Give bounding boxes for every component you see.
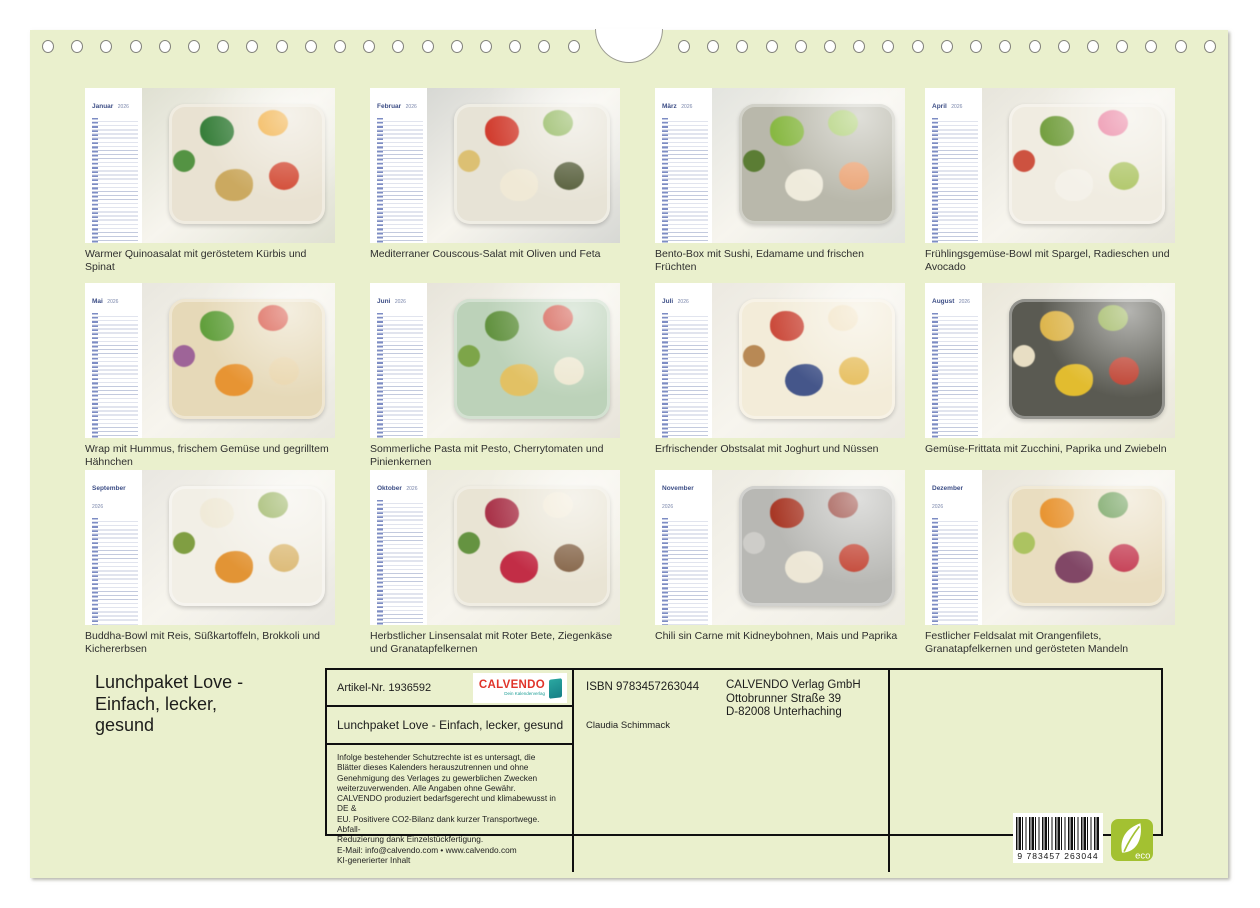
binding-hole — [1145, 40, 1157, 53]
binding-hole — [970, 40, 982, 53]
calendar-page-thumbnail: Juni 2026 — [370, 283, 620, 438]
calendar-month-cell: Dezember 2026 Festlicher Feldsalat mit O… — [925, 470, 1175, 655]
mini-calendar-day-lines — [377, 313, 423, 438]
photo-highlight — [142, 470, 335, 625]
months-row-3: September 2026 Buddha-Bowl mit Reis, Süß… — [85, 470, 1175, 655]
food-photo — [427, 88, 620, 243]
info-table-middle-column: ISBN 9783457263044 CALVENDO Verlag GmbH … — [572, 670, 888, 872]
month-year: 2026 — [951, 104, 962, 110]
mini-calendar-column: März 2026 — [655, 88, 712, 243]
month-name: Dezember — [932, 485, 963, 492]
mini-calendar-month-label: Februar 2026 — [377, 95, 423, 113]
calendar-page-thumbnail: November 2026 — [655, 470, 905, 625]
month-caption: Gemüse-Frittata mit Zucchini, Paprika un… — [925, 443, 1175, 456]
month-year: 2026 — [678, 299, 689, 305]
calendar-month-cell: Juni 2026 Sommerliche Pasta mit Pesto, C… — [370, 283, 620, 468]
calendar-back-page: Januar 2026 Warmer Quinoasalat mit gerös… — [0, 0, 1260, 908]
mini-calendar-column: Oktober 2026 — [370, 470, 427, 625]
photo-highlight — [427, 283, 620, 438]
month-year: 2026 — [118, 104, 129, 110]
binding-hole — [159, 40, 171, 53]
mini-calendar-month-label: September 2026 — [92, 477, 138, 513]
photo-highlight — [982, 283, 1175, 438]
photo-highlight — [427, 88, 620, 243]
publisher-address: CALVENDO Verlag GmbH Ottobrunner Straße … — [726, 679, 861, 720]
month-caption: Festlicher Feldsalat mit Orangenfilets, … — [925, 630, 1175, 655]
month-year: 2026 — [395, 299, 406, 305]
month-caption: Frühlingsgemüse-Bowl mit Spargel, Radies… — [925, 248, 1175, 273]
mini-calendar-day-lines — [92, 518, 138, 625]
months-row-1: Januar 2026 Warmer Quinoasalat mit gerös… — [85, 88, 1175, 273]
product-title: Lunchpaket Love - Einfach, lecker, gesun… — [95, 672, 243, 737]
info-table-right-column: 9 783457 263044 eco — [888, 670, 1161, 872]
month-caption: Warmer Quinoasalat mit geröstetem Kürbis… — [85, 248, 335, 273]
binding-hole — [568, 40, 580, 53]
binding-hole — [766, 40, 778, 53]
mini-calendar-month-label: August 2026 — [932, 290, 978, 308]
mini-calendar-month-label: April 2026 — [932, 95, 978, 113]
binding-hole — [363, 40, 375, 53]
binding-hole — [912, 40, 924, 53]
mini-calendar-month-label: Januar 2026 — [92, 95, 138, 113]
binding-hole — [422, 40, 434, 53]
binding-hole — [707, 40, 719, 53]
binding-hole — [42, 40, 54, 53]
month-caption: Erfrischender Obstsalat mit Joghurt und … — [655, 443, 905, 456]
calendar-month-cell: November 2026 Chili sin Carne mit Kidney… — [655, 470, 905, 655]
binding-hole — [334, 40, 346, 53]
eco-logo-icon: eco — [1111, 818, 1153, 862]
mini-calendar-month-label: März 2026 — [662, 95, 708, 113]
mini-calendar-day-lines — [932, 313, 978, 438]
calendar-month-cell: Januar 2026 Warmer Quinoasalat mit gerös… — [85, 88, 335, 273]
food-photo — [982, 470, 1175, 625]
product-title-row: Lunchpaket Love - Einfach, lecker, gesun… — [327, 707, 572, 745]
food-photo — [427, 470, 620, 625]
mini-calendar-column: August 2026 — [925, 283, 982, 438]
mini-calendar-column: Juni 2026 — [370, 283, 427, 438]
month-name: Oktober — [377, 485, 402, 492]
calendar-page-thumbnail: August 2026 — [925, 283, 1175, 438]
calendar-page-thumbnail: April 2026 — [925, 88, 1175, 243]
mini-calendar-day-lines — [932, 118, 978, 243]
mini-calendar-column: Dezember 2026 — [925, 470, 982, 625]
artikel-number: Artikel-Nr. 1936592 — [337, 682, 431, 694]
mini-calendar-day-lines — [932, 518, 978, 625]
food-photo — [712, 88, 905, 243]
month-year: 2026 — [406, 486, 417, 492]
binding-hole — [1116, 40, 1128, 53]
mini-calendar-column: September 2026 — [85, 470, 142, 625]
mini-calendar-month-label: Juni 2026 — [377, 290, 423, 308]
barcode-digits: 9 783457 263044 — [1016, 851, 1100, 861]
mini-calendar-month-label: Mai 2026 — [92, 290, 138, 308]
mini-calendar-month-label: November 2026 — [662, 477, 708, 513]
calvendo-tagline: Dein Kalenderverlag — [479, 691, 545, 696]
binding-hole — [480, 40, 492, 53]
calendar-month-cell: März 2026 Bento-Box mit Sushi, Edamame u… — [655, 88, 905, 273]
binding-hole — [678, 40, 690, 53]
calendar-month-cell: August 2026 Gemüse-Frittata mit Zucchini… — [925, 283, 1175, 468]
month-name: März — [662, 103, 677, 110]
food-photo — [982, 88, 1175, 243]
binding-hole — [392, 40, 404, 53]
month-year: 2026 — [107, 299, 118, 305]
binding-hole — [824, 40, 836, 53]
binding-hole — [451, 40, 463, 53]
month-year: 2026 — [681, 104, 692, 110]
calendar-page-thumbnail: September 2026 — [85, 470, 335, 625]
month-caption: Chili sin Carne mit Kidneybohnen, Mais u… — [655, 630, 905, 643]
photo-highlight — [142, 88, 335, 243]
calendar-month-cell: Mai 2026 Wrap mit Hummus, frischem Gemüs… — [85, 283, 335, 468]
calvendo-logo: CALVENDO Dein Kalenderverlag — [473, 673, 567, 703]
month-year: 2026 — [932, 504, 943, 510]
barcode-bars — [1016, 817, 1100, 850]
isbn-number: ISBN 9783457263044 — [586, 681, 699, 693]
binding-hole — [795, 40, 807, 53]
binding-hole — [736, 40, 748, 53]
ean-barcode: 9 783457 263044 — [1013, 813, 1103, 863]
binding-hole — [999, 40, 1011, 53]
calendar-page-thumbnail: Mai 2026 — [85, 283, 335, 438]
hanger-notch — [595, 29, 663, 63]
legal-text: Infolge bestehender Schutzrechte ist es … — [327, 745, 572, 872]
binding-hole — [276, 40, 288, 53]
calendar-page-thumbnail: Juli 2026 — [655, 283, 905, 438]
mini-calendar-column: Mai 2026 — [85, 283, 142, 438]
binding-hole — [853, 40, 865, 53]
calendar-page-thumbnail: Dezember 2026 — [925, 470, 1175, 625]
mini-calendar-month-label: Dezember 2026 — [932, 477, 978, 513]
photo-highlight — [142, 283, 335, 438]
calvendo-logo-text: CALVENDO Dein Kalenderverlag — [479, 680, 545, 696]
month-name: April — [932, 103, 947, 110]
photo-highlight — [712, 470, 905, 625]
month-name: September — [92, 485, 126, 492]
mini-calendar-day-lines — [662, 518, 708, 625]
month-year: 2026 — [406, 104, 417, 110]
mini-calendar-column: Januar 2026 — [85, 88, 142, 243]
binding-hole — [305, 40, 317, 53]
mini-calendar-day-lines — [662, 118, 708, 243]
binding-hole — [188, 40, 200, 53]
calendar-month-cell: Oktober 2026 Herbstlicher Linsensalat mi… — [370, 470, 620, 655]
binding-hole — [882, 40, 894, 53]
binding-hole — [246, 40, 258, 53]
mini-calendar-month-label: Oktober 2026 — [377, 477, 423, 495]
month-caption: Herbstlicher Linsensalat mit Roter Bete,… — [370, 630, 620, 655]
mini-calendar-column: November 2026 — [655, 470, 712, 625]
months-row-2: Mai 2026 Wrap mit Hummus, frischem Gemüs… — [85, 283, 1175, 468]
month-name: August — [932, 298, 954, 305]
mini-calendar-day-lines — [92, 313, 138, 438]
binding-hole — [1058, 40, 1070, 53]
photo-highlight — [982, 88, 1175, 243]
food-photo — [142, 470, 335, 625]
calendar-month-cell: April 2026 Frühlingsgemüse-Bowl mit Spar… — [925, 88, 1175, 273]
mini-calendar-column: Juli 2026 — [655, 283, 712, 438]
author-name: Claudia Schimmack — [586, 720, 670, 731]
binding-hole — [130, 40, 142, 53]
calendar-month-cell: Juli 2026 Erfrischender Obstsalat mit Jo… — [655, 283, 905, 468]
photo-highlight — [982, 470, 1175, 625]
calendar-page-thumbnail: Oktober 2026 — [370, 470, 620, 625]
mini-calendar-column: April 2026 — [925, 88, 982, 243]
calvendo-wordmark: CALVENDO — [479, 680, 545, 691]
mini-calendar-day-lines — [377, 500, 423, 625]
month-name: Juni — [377, 298, 390, 305]
binding-hole — [217, 40, 229, 53]
eco-label: eco — [1135, 851, 1150, 862]
mini-calendar-column: Februar 2026 — [370, 88, 427, 243]
calendar-page-thumbnail: Januar 2026 — [85, 88, 335, 243]
calvendo-logo-mark-icon — [549, 678, 562, 699]
month-name: Juli — [662, 298, 673, 305]
binding-hole — [1087, 40, 1099, 53]
binding-hole — [100, 40, 112, 53]
month-name: Februar — [377, 103, 401, 110]
food-photo — [982, 283, 1175, 438]
month-caption: Wrap mit Hummus, frischem Gemüse und geg… — [85, 443, 335, 468]
month-year: 2026 — [959, 299, 970, 305]
product-info-table: Artikel-Nr. 1936592 CALVENDO Dein Kalend… — [325, 668, 1163, 836]
calendar-page-thumbnail: Februar 2026 — [370, 88, 620, 243]
food-photo — [142, 283, 335, 438]
photo-highlight — [712, 88, 905, 243]
month-caption: Buddha-Bowl mit Reis, Süßkartoffeln, Bro… — [85, 630, 335, 655]
binding-hole — [941, 40, 953, 53]
binding-hole — [538, 40, 550, 53]
month-year: 2026 — [662, 504, 673, 510]
mini-calendar-month-label: Juli 2026 — [662, 290, 708, 308]
month-year: 2026 — [92, 504, 103, 510]
mini-calendar-day-lines — [662, 313, 708, 438]
food-photo — [142, 88, 335, 243]
calendar-sheet: Januar 2026 Warmer Quinoasalat mit gerös… — [30, 30, 1228, 878]
mini-calendar-day-lines — [92, 118, 138, 243]
artikel-row: Artikel-Nr. 1936592 CALVENDO Dein Kalend… — [327, 670, 572, 707]
info-table-left-column: Artikel-Nr. 1936592 CALVENDO Dein Kalend… — [327, 670, 572, 872]
month-name: November — [662, 485, 694, 492]
month-caption: Sommerliche Pasta mit Pesto, Cherrytomat… — [370, 443, 620, 468]
photo-highlight — [427, 470, 620, 625]
mini-calendar-day-lines — [377, 118, 423, 243]
binding-hole — [1175, 40, 1187, 53]
food-photo — [712, 283, 905, 438]
month-caption: Mediterraner Couscous-Salat mit Oliven u… — [370, 248, 620, 261]
food-photo — [427, 283, 620, 438]
food-photo — [712, 470, 905, 625]
month-name: Mai — [92, 298, 103, 305]
calendar-month-cell: Februar 2026 Mediterraner Couscous-Salat… — [370, 88, 620, 273]
binding-hole — [1204, 40, 1216, 53]
calendar-month-cell: September 2026 Buddha-Bowl mit Reis, Süß… — [85, 470, 335, 655]
calendar-page-thumbnail: März 2026 — [655, 88, 905, 243]
month-name: Januar — [92, 103, 113, 110]
binding-hole — [509, 40, 521, 53]
binding-hole — [1029, 40, 1041, 53]
month-caption: Bento-Box mit Sushi, Edamame und frische… — [655, 248, 905, 273]
binding-hole — [71, 40, 83, 53]
photo-highlight — [712, 283, 905, 438]
